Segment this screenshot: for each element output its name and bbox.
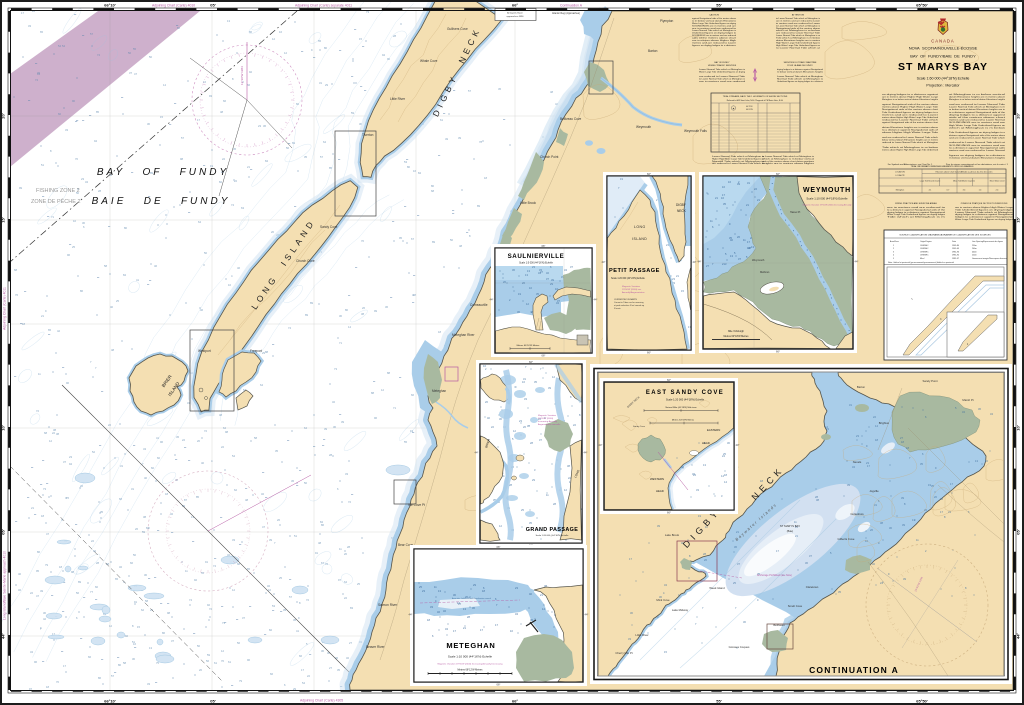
svg-text:90: 90 bbox=[72, 99, 75, 103]
svg-text:Metres 64°18'N Metres: Metres 64°18'N Metres bbox=[672, 419, 695, 422]
svg-text:16: 16 bbox=[279, 30, 282, 34]
svg-text:65°50': 65°50' bbox=[916, 699, 927, 704]
svg-text:05': 05' bbox=[210, 3, 215, 8]
svg-text:14: 14 bbox=[163, 83, 166, 87]
svg-text:22: 22 bbox=[182, 438, 185, 442]
svg-text:Sandy Cove: Sandy Cove bbox=[633, 426, 646, 428]
svg-text:85: 85 bbox=[196, 495, 199, 499]
svg-text:POUR LA BAIE DE FUNDY: POUR LA BAIE DE FUNDY bbox=[787, 64, 813, 67]
svg-text:TIDAL INFORMATION/RENSEIGNEMEN: TIDAL INFORMATION/RENSEIGNEMENTS SUR LES… bbox=[911, 165, 974, 168]
svg-text:48: 48 bbox=[245, 498, 248, 502]
svg-text:68: 68 bbox=[44, 431, 47, 435]
svg-text:98: 98 bbox=[180, 157, 183, 161]
svg-text:LONG: LONG bbox=[634, 225, 646, 229]
svg-text:74: 74 bbox=[288, 326, 291, 330]
svg-text:Freeport: Freeport bbox=[250, 349, 262, 353]
svg-text:64: 64 bbox=[198, 220, 201, 224]
svg-text:18: 18 bbox=[22, 322, 25, 326]
svg-text:Little River: Little River bbox=[635, 633, 648, 637]
svg-text:84: 84 bbox=[418, 171, 421, 175]
svg-text:66: 66 bbox=[177, 26, 180, 30]
svg-text:61: 61 bbox=[440, 118, 443, 122]
svg-text:Barton: Barton bbox=[648, 49, 658, 53]
svg-text:18: 18 bbox=[46, 685, 49, 689]
svg-text:26: 26 bbox=[277, 518, 280, 522]
svg-text:20: 20 bbox=[197, 439, 200, 443]
svg-text:80: 80 bbox=[431, 184, 434, 188]
svg-text:1985-97: 1985-97 bbox=[952, 258, 959, 260]
svg-text:1965-69: 1965-69 bbox=[952, 248, 959, 250]
svg-text:99: 99 bbox=[374, 309, 377, 313]
svg-text:10: 10 bbox=[73, 219, 76, 223]
svg-text:32: 32 bbox=[332, 400, 335, 404]
svg-text:Navigational aids of the metre: Navigational aids of the metres above ch… bbox=[882, 108, 939, 111]
svg-text:19°50'W (2000) incr: 19°50'W (2000) incr bbox=[622, 288, 642, 291]
svg-text:89: 89 bbox=[477, 204, 480, 208]
svg-text:83: 83 bbox=[350, 606, 353, 610]
svg-text:51: 51 bbox=[294, 534, 297, 538]
svg-text:80: 80 bbox=[124, 226, 127, 230]
svg-text:50: 50 bbox=[204, 251, 207, 255]
svg-text:HEAD: HEAD bbox=[702, 441, 710, 445]
svg-text:27: 27 bbox=[329, 666, 332, 670]
svg-text:heights are in metres above Hi: heights are in metres above Higher bbox=[762, 162, 815, 165]
svg-text:Church Point: Church Point bbox=[540, 155, 559, 159]
svg-text:22: 22 bbox=[30, 591, 33, 595]
svg-text:CANADA: CANADA bbox=[931, 39, 954, 44]
svg-text:aids of the metres above chart: aids of the metres above chart bbox=[949, 116, 1006, 119]
svg-text:94: 94 bbox=[69, 462, 72, 466]
svg-text:54: 54 bbox=[58, 44, 61, 48]
svg-text:21: 21 bbox=[31, 506, 34, 510]
svg-text:ISLAND: ISLAND bbox=[632, 237, 647, 241]
svg-text:93: 93 bbox=[37, 72, 40, 76]
svg-text:51: 51 bbox=[41, 163, 44, 167]
svg-text:Lake Midway: Lake Midway bbox=[672, 608, 689, 612]
svg-text:95: 95 bbox=[399, 236, 402, 240]
svg-text:33: 33 bbox=[232, 538, 235, 542]
svg-text:40: 40 bbox=[144, 476, 147, 480]
svg-text:Projection : Mercator: Projection : Mercator bbox=[926, 84, 960, 88]
svg-text:28: 28 bbox=[347, 545, 350, 549]
svg-text:66: 66 bbox=[88, 655, 91, 659]
svg-text:16: 16 bbox=[413, 169, 416, 173]
svg-text:39: 39 bbox=[458, 136, 461, 140]
svg-text:66°: 66° bbox=[776, 172, 780, 176]
svg-text:93: 93 bbox=[209, 94, 212, 98]
svg-text:SOUNDINGS are in metres and ar: SOUNDINGS are in metres and are bbox=[949, 121, 1006, 124]
svg-text:3.4: 3.4 bbox=[963, 190, 966, 192]
svg-text:55: 55 bbox=[404, 440, 407, 444]
svg-text:Ste Cove Pt: Ste Cove Pt bbox=[408, 503, 425, 507]
svg-text:18: 18 bbox=[59, 565, 62, 569]
svg-text:48: 48 bbox=[220, 110, 223, 114]
svg-text:CAUTION: CAUTION bbox=[709, 14, 719, 17]
svg-text:1985-90: 1985-90 bbox=[952, 255, 959, 257]
svg-text:15': 15' bbox=[1, 217, 6, 222]
svg-text:Weymouth Falls: Weymouth Falls bbox=[684, 129, 707, 133]
svg-text:89: 89 bbox=[310, 301, 313, 305]
svg-text:56: 56 bbox=[286, 146, 289, 150]
svg-text:72: 72 bbox=[348, 500, 351, 504]
svg-text:33: 33 bbox=[345, 472, 348, 476]
svg-text:28: 28 bbox=[98, 189, 101, 193]
svg-text:Westport: Westport bbox=[198, 349, 211, 353]
svg-text:55: 55 bbox=[318, 39, 321, 43]
svg-text:5 knots: 5 knots bbox=[614, 307, 620, 310]
svg-text:57: 57 bbox=[111, 674, 114, 678]
svg-text:50: 50 bbox=[128, 51, 131, 55]
svg-text:1982-96: 1982-96 bbox=[952, 251, 959, 253]
svg-text:WESTERN: WESTERN bbox=[650, 477, 664, 481]
svg-text:66: 66 bbox=[299, 654, 302, 658]
svg-text:27: 27 bbox=[26, 607, 29, 611]
svg-text:30: 30 bbox=[82, 221, 85, 225]
svg-text:76: 76 bbox=[66, 496, 69, 500]
svg-text:86: 86 bbox=[80, 289, 83, 293]
svg-text:31: 31 bbox=[120, 464, 123, 468]
svg-text:60: 60 bbox=[296, 102, 299, 106]
svg-text:against Navigational aids of t: against Navigational aids of the metres … bbox=[882, 103, 939, 106]
svg-text:Melbran: Melbran bbox=[760, 270, 770, 274]
svg-text:68: 68 bbox=[14, 268, 17, 272]
svg-text:BAY OF FUNDY: BAY OF FUNDY bbox=[714, 61, 730, 64]
svg-text:36: 36 bbox=[385, 305, 388, 309]
svg-text:66°05'W: 66°05'W bbox=[746, 109, 753, 111]
svg-text:32: 32 bbox=[346, 656, 349, 660]
svg-text:72: 72 bbox=[36, 409, 39, 413]
svg-text:31: 31 bbox=[131, 487, 134, 491]
svg-text:12: 12 bbox=[109, 624, 112, 628]
svg-text:44°: 44° bbox=[1, 633, 6, 639]
svg-text:40: 40 bbox=[201, 461, 204, 465]
svg-text:71: 71 bbox=[339, 341, 342, 345]
svg-text:66°: 66° bbox=[647, 350, 651, 354]
svg-text:21: 21 bbox=[41, 314, 44, 318]
svg-text:CURRENTS/COURANTS: CURRENTS/COURANTS bbox=[614, 298, 638, 301]
svg-text:TIDAL STREAMS, BACK THE 1 HOUR: TIDAL STREAMS, BACK THE 1 HOURANTS OF SH… bbox=[723, 95, 788, 98]
svg-text:METEGHAN: METEGHAN bbox=[446, 641, 495, 650]
svg-text:80: 80 bbox=[324, 46, 327, 50]
svg-text:44°: 44° bbox=[585, 613, 589, 617]
svg-text:96: 96 bbox=[66, 381, 69, 385]
svg-text:1: 1 bbox=[893, 245, 894, 247]
svg-text:and are reduced to Lower Norma: and are reduced to Lower Normal Tide bbox=[949, 103, 1006, 106]
svg-text:44°: 44° bbox=[584, 451, 588, 455]
svg-text:Anchorage Prohibited (see Note: Anchorage Prohibited (see Note) bbox=[757, 574, 792, 577]
svg-text:13°30'W 1984: 13°30'W 1984 bbox=[240, 66, 244, 85]
svg-text:68: 68 bbox=[431, 189, 434, 193]
svg-text:Magnetic Variation: Magnetic Variation bbox=[622, 285, 641, 288]
svg-text:Plympton: Plympton bbox=[660, 19, 674, 23]
svg-text:Smelt Cove: Smelt Cove bbox=[788, 604, 803, 608]
svg-text:22: 22 bbox=[344, 596, 347, 600]
svg-text:SERVICES DU TRAFIC MARITIME: SERVICES DU TRAFIC MARITIME bbox=[784, 61, 817, 64]
svg-text:25: 25 bbox=[357, 582, 360, 586]
svg-text:77: 77 bbox=[90, 590, 93, 594]
svg-text:reduced to Lower Normal Tide w: reduced to Lower Normal Tide which at Me… bbox=[882, 141, 939, 144]
svg-text:58: 58 bbox=[254, 436, 257, 440]
svg-text:Date: Date bbox=[952, 240, 956, 243]
svg-text:Week Island: Week Island bbox=[709, 586, 725, 590]
svg-text:96: 96 bbox=[67, 253, 70, 257]
svg-text:42: 42 bbox=[43, 617, 46, 621]
svg-text:30: 30 bbox=[132, 657, 135, 661]
svg-text:Marsh Pt: Marsh Pt bbox=[962, 398, 973, 402]
svg-text:30: 30 bbox=[43, 611, 46, 615]
svg-text:66°: 66° bbox=[529, 360, 533, 364]
svg-text:86: 86 bbox=[162, 631, 165, 635]
svg-text:44°: 44° bbox=[693, 260, 697, 264]
svg-text:82: 82 bbox=[219, 180, 222, 184]
svg-text:Brighton: Brighton bbox=[879, 421, 890, 425]
svg-text:Lower Normal Tide which at Met: Lower Normal Tide which at Meteghan is m bbox=[949, 106, 1005, 109]
svg-text:73: 73 bbox=[43, 487, 46, 491]
svg-text:87: 87 bbox=[184, 498, 187, 502]
svg-text:35: 35 bbox=[337, 668, 340, 672]
svg-text:44°: 44° bbox=[736, 443, 740, 447]
svg-text:54: 54 bbox=[302, 681, 305, 685]
svg-text:44°: 44° bbox=[602, 260, 606, 264]
svg-text:250m: 250m bbox=[972, 245, 977, 247]
svg-text:44°: 44° bbox=[490, 298, 494, 302]
svg-text:m below vertical datum Elevati: m below vertical datum Elevations height… bbox=[949, 108, 1006, 111]
svg-text:Underlined figures on drying l: Underlined figures on drying ledges to a… bbox=[777, 80, 824, 83]
svg-text:62: 62 bbox=[141, 608, 144, 612]
svg-text:Magnetic Variation: Magnetic Variation bbox=[538, 414, 557, 417]
svg-text:Scale 1:20 000 (44°18'N) Echel: Scale 1:20 000 (44°18'N) Echelle bbox=[666, 398, 705, 402]
svg-text:43: 43 bbox=[143, 447, 146, 451]
svg-text:50: 50 bbox=[149, 55, 152, 59]
svg-text:Tide which at Meteghan is m be: Tide which at Meteghan is m below bbox=[882, 146, 939, 149]
svg-text:ZONE DE PÊCHE 2: ZONE DE PÊCHE 2 bbox=[31, 197, 81, 205]
svg-text:drying ledges to a distance ag: drying ledges to a distance against bbox=[949, 113, 1006, 116]
svg-text:14: 14 bbox=[348, 325, 351, 329]
svg-text:3: 3 bbox=[893, 251, 894, 253]
svg-text:89: 89 bbox=[305, 313, 308, 317]
svg-text:72: 72 bbox=[306, 598, 309, 602]
svg-text:Scale 1:5 000 (44°16'N) Echell: Scale 1:5 000 (44°16'N) Echelle bbox=[519, 262, 554, 265]
svg-text:18: 18 bbox=[41, 514, 44, 518]
svg-text:FISHING ZONE 2: FISHING ZONE 2 bbox=[36, 188, 80, 194]
svg-text:17: 17 bbox=[63, 664, 66, 668]
svg-text:39: 39 bbox=[269, 538, 272, 542]
svg-text:Jogville: Jogville bbox=[869, 489, 879, 493]
svg-text:58: 58 bbox=[145, 599, 148, 603]
svg-text:20: 20 bbox=[271, 230, 274, 234]
svg-text:66: 66 bbox=[411, 393, 414, 397]
svg-text:92: 92 bbox=[125, 634, 128, 638]
svg-text:Gullivers Cove: Gullivers Cove bbox=[447, 27, 468, 31]
svg-text:Whale Cove: Whale Cove bbox=[420, 59, 438, 63]
svg-text:HEAD: HEAD bbox=[656, 489, 664, 493]
svg-text:94: 94 bbox=[382, 53, 385, 57]
svg-text:metres above Higher High Water: metres above Higher High Water Large Tid… bbox=[882, 106, 939, 109]
svg-text:Scale 1:20 000, (44°16'N) Eche: Scale 1:20 000, (44°16'N) Echelle bbox=[536, 535, 570, 537]
svg-text:15': 15' bbox=[1016, 217, 1021, 222]
svg-text:Atlantic Reg (Approaches): Atlantic Reg (Approaches) bbox=[552, 12, 580, 15]
svg-text:Elevation above Chart Datum/Al: Elevation above Chart Datum/Altitude au-… bbox=[936, 171, 993, 174]
svg-text:37: 37 bbox=[171, 639, 174, 643]
svg-text:73: 73 bbox=[334, 367, 337, 371]
svg-text:39: 39 bbox=[341, 420, 344, 424]
svg-text:29: 29 bbox=[262, 351, 265, 355]
svg-text:Mean Tide/Marée moyenne: Mean Tide/Marée moyenne bbox=[953, 181, 975, 183]
svg-text:27: 27 bbox=[349, 641, 352, 645]
svg-text:Claretown: Claretown bbox=[806, 585, 819, 589]
svg-text:49: 49 bbox=[445, 137, 448, 141]
svg-text:22: 22 bbox=[108, 423, 111, 427]
svg-text:Hassel Pt: Hassel Pt bbox=[790, 211, 801, 214]
svg-text:CHS/SHC: CHS/SHC bbox=[920, 251, 929, 253]
svg-text:71: 71 bbox=[51, 215, 54, 219]
svg-text:Magnetic Variation 19°55'W (20: Magnetic Variation 19°55'W (2000) Increa… bbox=[438, 663, 504, 666]
svg-text:Cottesbois: Cottesbois bbox=[850, 512, 864, 516]
svg-text:Adjoining Chart (Carte) 4010: Adjoining Chart (Carte) 4010 bbox=[152, 3, 195, 7]
svg-text:26: 26 bbox=[135, 527, 138, 531]
svg-text:70: 70 bbox=[75, 157, 78, 161]
svg-text:Natural Mile (44°18'N) Mile te: Natural Mile (44°18'N) Mile term bbox=[665, 406, 696, 409]
svg-text:29: 29 bbox=[325, 83, 328, 87]
svg-text:66: 66 bbox=[130, 561, 133, 565]
svg-text:76: 76 bbox=[15, 293, 18, 297]
svg-text:66°10': 66°10' bbox=[104, 699, 115, 704]
svg-text:66°: 66° bbox=[542, 244, 546, 248]
svg-text:10': 10' bbox=[1016, 425, 1021, 430]
svg-text:66°10': 66°10' bbox=[104, 3, 115, 8]
svg-text:metres above Higher High Water: metres above Higher High Water Large Tid… bbox=[882, 116, 939, 119]
svg-text:distance against Navigational: distance against Navigational aids of th… bbox=[949, 134, 1006, 137]
svg-text:74: 74 bbox=[231, 203, 234, 207]
svg-text:66°: 66° bbox=[497, 545, 501, 549]
svg-text:65: 65 bbox=[115, 577, 118, 581]
svg-text:47: 47 bbox=[36, 594, 39, 598]
svg-text:VESSEL TRAFFIC SERVICES: VESSEL TRAFFIC SERVICES bbox=[708, 64, 737, 67]
svg-text:30: 30 bbox=[144, 573, 147, 577]
svg-text:64: 64 bbox=[304, 426, 307, 430]
svg-text:70: 70 bbox=[56, 680, 59, 684]
svg-text:41: 41 bbox=[296, 629, 299, 633]
svg-text:70: 70 bbox=[221, 659, 224, 663]
svg-text:ST MARYS BAY: ST MARYS BAY bbox=[898, 61, 988, 73]
svg-text:84: 84 bbox=[123, 273, 126, 277]
svg-text:59: 59 bbox=[207, 653, 210, 657]
svg-text:52: 52 bbox=[92, 450, 95, 454]
svg-text:Augmentation annuelle: Augmentation annuelle bbox=[538, 423, 561, 426]
svg-text:79: 79 bbox=[239, 679, 242, 683]
svg-text:47: 47 bbox=[134, 72, 137, 76]
svg-text:25: 25 bbox=[72, 245, 75, 249]
svg-text:22: 22 bbox=[234, 179, 237, 183]
svg-text:96: 96 bbox=[247, 658, 250, 662]
svg-text:94: 94 bbox=[94, 139, 97, 143]
svg-text:12: 12 bbox=[381, 388, 384, 392]
svg-text:CONTINUATION A: CONTINUATION A bbox=[809, 665, 899, 675]
svg-text:98: 98 bbox=[225, 430, 228, 434]
svg-text:17: 17 bbox=[197, 118, 200, 122]
svg-text:44°: 44° bbox=[599, 443, 603, 447]
svg-text:67: 67 bbox=[411, 237, 414, 241]
svg-text:22: 22 bbox=[91, 539, 94, 543]
svg-text:73: 73 bbox=[222, 621, 225, 625]
svg-text:66°: 66° bbox=[667, 510, 671, 514]
svg-text:Church Cove: Church Cove bbox=[296, 259, 315, 263]
svg-text:Magnetic Variation 19°50'W (20: Magnetic Variation 19°50'W (2000) Increa… bbox=[803, 204, 852, 207]
svg-text:66: 66 bbox=[247, 83, 250, 87]
svg-text:63: 63 bbox=[241, 206, 244, 210]
svg-text:05': 05' bbox=[1, 529, 6, 534]
svg-text:◉: ◉ bbox=[733, 107, 735, 110]
svg-text:CHS/SHC: CHS/SHC bbox=[920, 245, 929, 247]
svg-text:30: 30 bbox=[339, 314, 342, 318]
svg-text:Comeauville: Comeauville bbox=[470, 303, 488, 307]
svg-text:22: 22 bbox=[307, 674, 310, 678]
svg-text:Scale 1:10 000 (44°16'N) Echel: Scale 1:10 000 (44°16'N) Echelle bbox=[448, 655, 492, 659]
svg-text:BAIE DE FUNDY: BAIE DE FUNDY bbox=[92, 196, 231, 207]
svg-text:Current in Tides can be revers: Current in Tides can be reversing bbox=[614, 301, 643, 304]
svg-text:99: 99 bbox=[182, 504, 185, 508]
svg-text:28: 28 bbox=[329, 453, 332, 457]
svg-text:89: 89 bbox=[432, 240, 435, 244]
svg-text:46: 46 bbox=[237, 266, 240, 270]
svg-text:92: 92 bbox=[207, 603, 210, 607]
svg-text:Mean Water Level: Mean Water Level bbox=[990, 180, 1005, 183]
svg-text:m below vertical datum Elevati: m below vertical datum Elevations height… bbox=[777, 71, 823, 74]
svg-text:96: 96 bbox=[34, 660, 37, 664]
svg-text:57: 57 bbox=[320, 155, 323, 159]
svg-text:44°: 44° bbox=[855, 260, 859, 264]
svg-text:Belliveau Cove: Belliveau Cove bbox=[560, 117, 581, 121]
svg-text:(Baie): (Baie) bbox=[787, 530, 794, 533]
svg-text:91: 91 bbox=[205, 560, 208, 564]
svg-text:against Navigational aids of t: against Navigational aids of the metres … bbox=[882, 121, 938, 124]
svg-text:48: 48 bbox=[550, 90, 553, 94]
svg-text:SOUNDINGS are in metres and ar: SOUNDINGS are in metres and are bbox=[949, 144, 1006, 147]
svg-text:30: 30 bbox=[333, 425, 336, 429]
svg-text:34: 34 bbox=[30, 650, 33, 654]
svg-text:figures on drying ledges to a: figures on drying ledges to a distance bbox=[949, 154, 1006, 157]
svg-text:44°: 44° bbox=[594, 298, 598, 302]
svg-text:58: 58 bbox=[123, 661, 126, 665]
svg-text:59: 59 bbox=[142, 530, 145, 534]
svg-text:Belliveau: Belliveau bbox=[773, 623, 785, 627]
svg-text:12: 12 bbox=[49, 439, 52, 443]
svg-text:16: 16 bbox=[133, 642, 136, 646]
svg-text:figures on drying ledges to a: figures on drying ledges to a distance bbox=[692, 44, 737, 47]
svg-text:66°: 66° bbox=[667, 378, 671, 382]
svg-text:82: 82 bbox=[269, 628, 272, 632]
svg-text:64: 64 bbox=[323, 140, 326, 144]
svg-text:05': 05' bbox=[210, 699, 215, 704]
svg-text:50: 50 bbox=[133, 553, 136, 557]
svg-text:12: 12 bbox=[232, 588, 235, 592]
svg-text:200m: 200m bbox=[972, 248, 977, 250]
svg-text:45: 45 bbox=[233, 147, 236, 151]
svg-text:21: 21 bbox=[247, 165, 250, 169]
svg-text:Beaver River: Beaver River bbox=[366, 645, 385, 649]
svg-text:39: 39 bbox=[324, 427, 327, 431]
svg-text:CHS/SHC: CHS/SHC bbox=[920, 248, 929, 250]
svg-text:Meteghan: Meteghan bbox=[432, 389, 446, 393]
svg-text:45: 45 bbox=[291, 479, 294, 483]
svg-text:50: 50 bbox=[304, 481, 307, 485]
svg-text:44°: 44° bbox=[475, 451, 479, 455]
svg-text:Anse des Leblanc/Roule breakwa: Anse des Leblanc/Roule breakwater remark bbox=[452, 597, 491, 600]
svg-text:47: 47 bbox=[46, 532, 49, 536]
svg-text:Adjoining Chart (Carte) separa: Adjoining Chart (Carte) separate 4011 bbox=[295, 3, 352, 7]
svg-text:Water Large Tide Underlined fi: Water Large Tide Underlined figures on d… bbox=[699, 71, 745, 74]
svg-text:CHS/SHC: CHS/SHC bbox=[920, 255, 929, 257]
